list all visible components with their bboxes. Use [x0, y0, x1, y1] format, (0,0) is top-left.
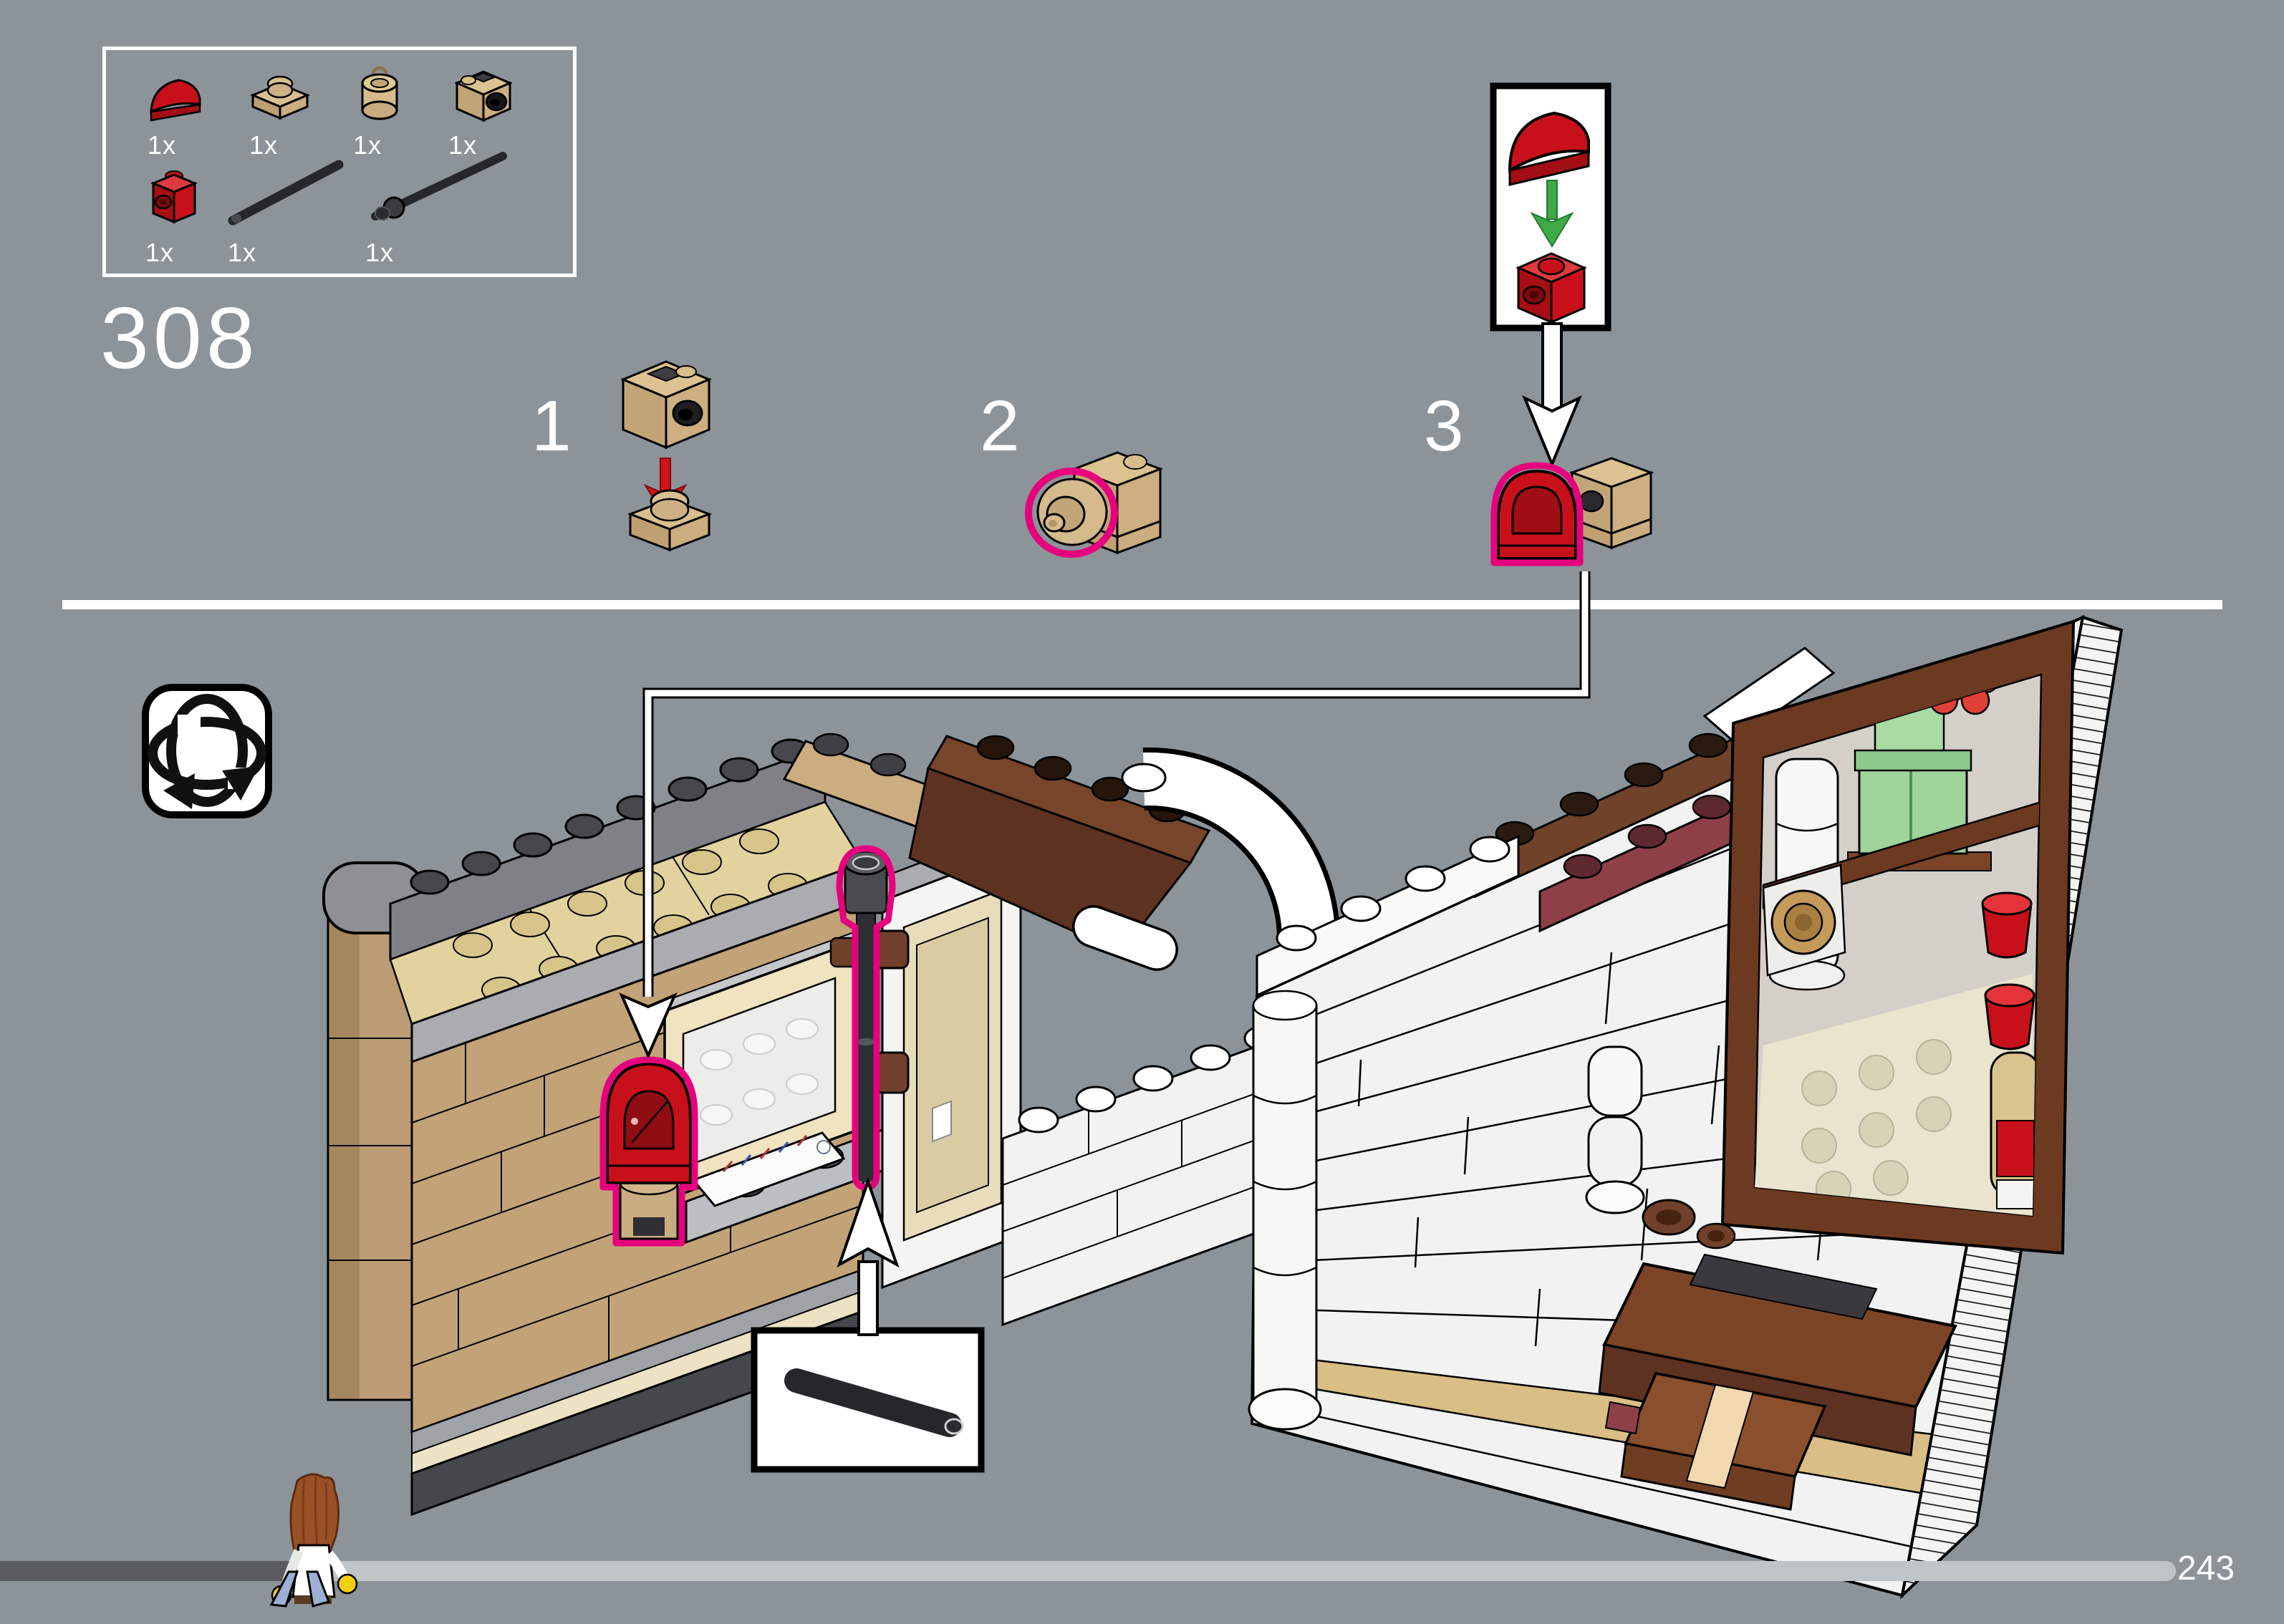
- green-arrow: [1547, 180, 1557, 219]
- instruction-page: 1x 1x 1x 1x 1x 1x 1x 308 1 2 3: [0, 0, 2284, 1624]
- progress-bar-remaining: [319, 1561, 2176, 1581]
- mailbox-highlighted: [603, 1060, 695, 1243]
- rotunda-column: [1249, 991, 1321, 1429]
- substep-3-callout: [1493, 86, 1651, 563]
- assembly-illustration: [0, 0, 2284, 1624]
- red-arrow: [660, 458, 670, 491]
- substep-1-diagram: [623, 362, 709, 550]
- minifigure-progress-marker: [254, 1468, 369, 1608]
- section-divider: [62, 600, 2222, 609]
- right-wing-building: [1249, 617, 2121, 1595]
- substep-2-diagram: [1028, 453, 1160, 554]
- page-number: 243: [2177, 1549, 2235, 1588]
- rotate-model-icon: [142, 684, 272, 818]
- glass-door-interior: [1722, 622, 2073, 1253]
